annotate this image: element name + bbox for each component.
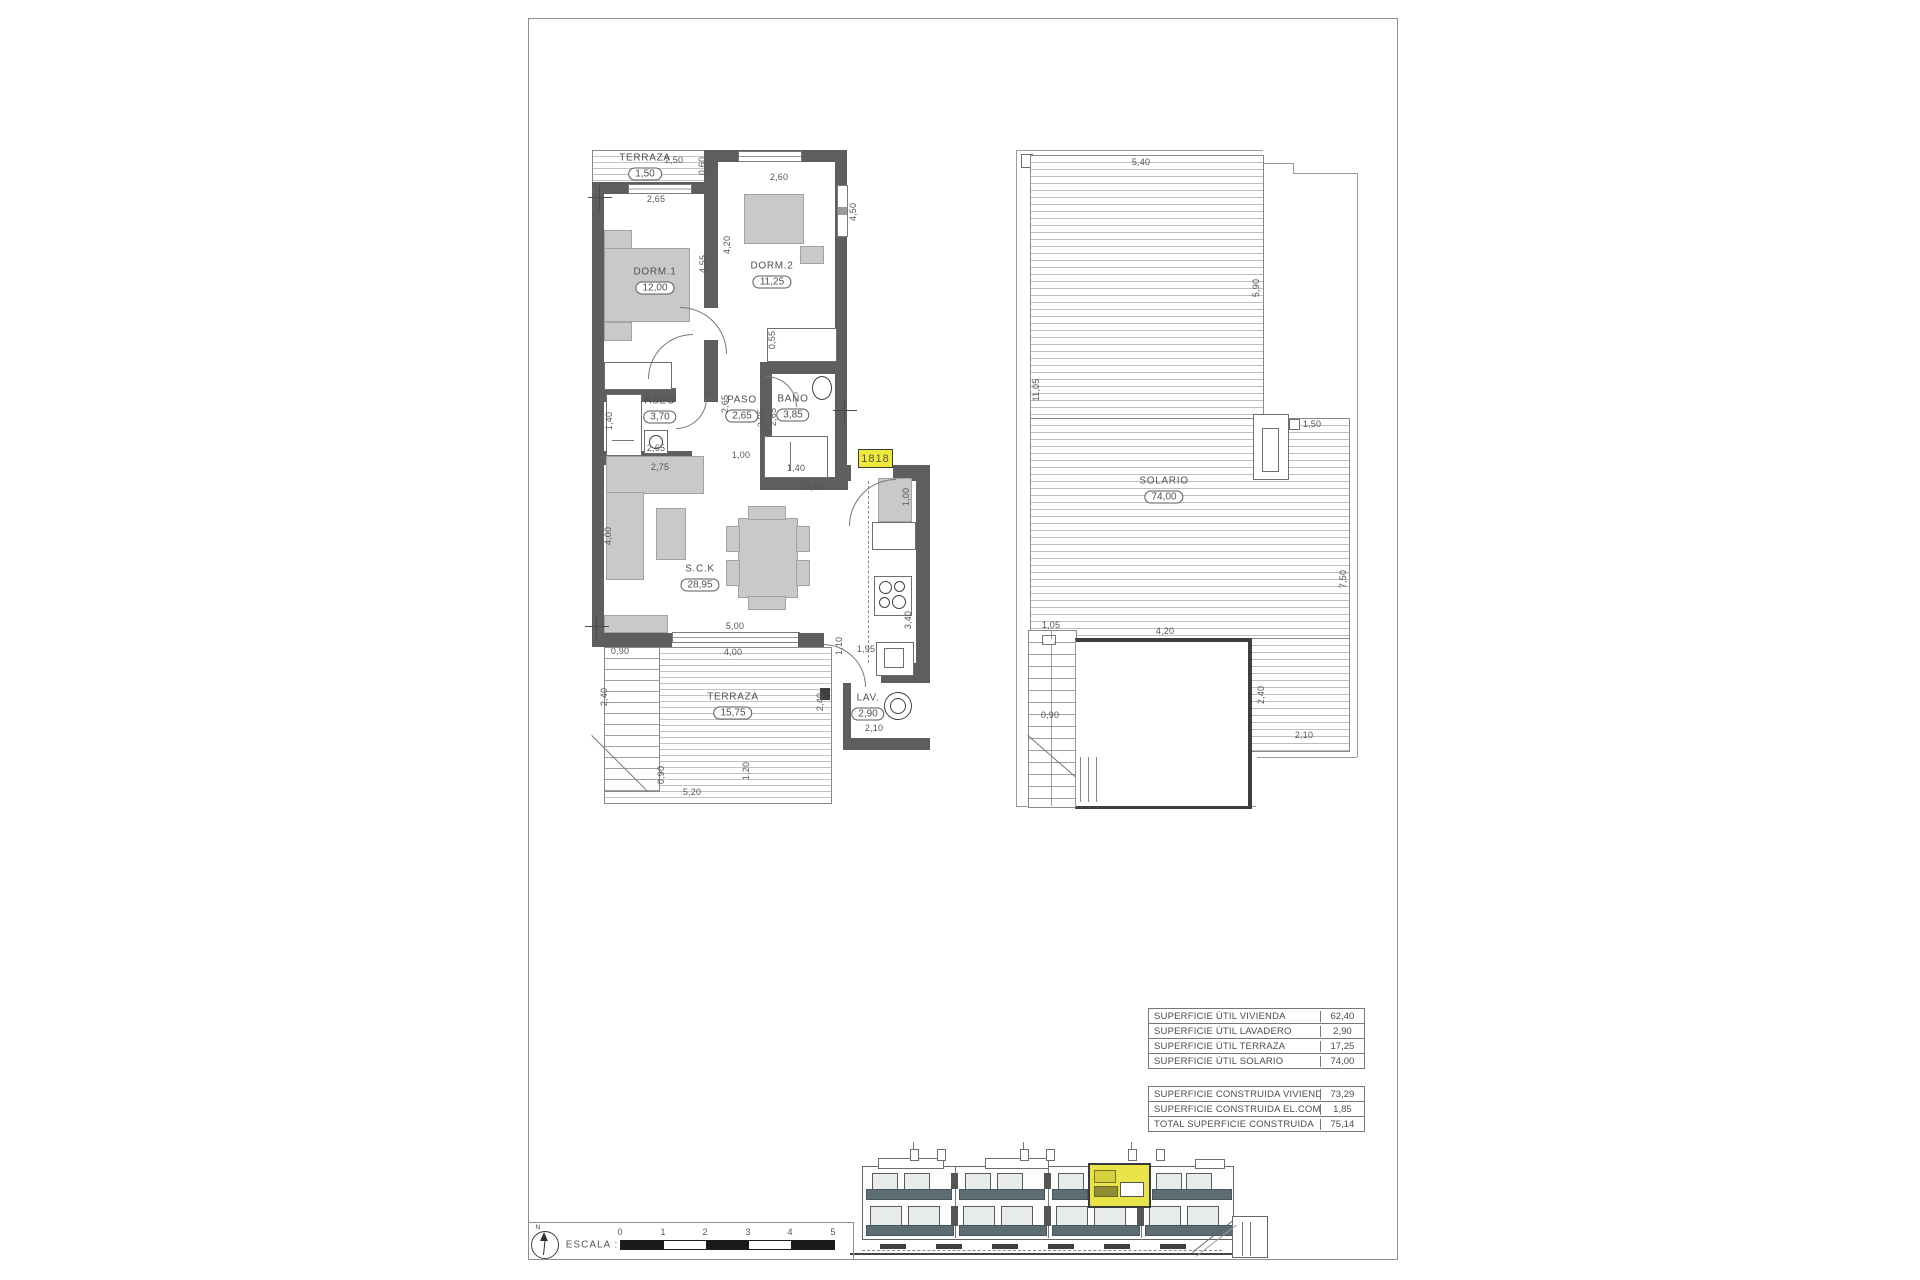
row-value: 74,00 xyxy=(1320,1056,1364,1067)
unit-railing xyxy=(1094,1186,1118,1197)
wall-entry-left xyxy=(835,465,851,481)
unit-window xyxy=(1094,1170,1116,1183)
wall-left xyxy=(592,182,604,647)
scale-tick: 2 xyxy=(702,1227,707,1237)
room-area: 28,95 xyxy=(680,579,719,592)
chimney-inner xyxy=(1262,428,1279,472)
room-area: 15,75 xyxy=(713,707,752,720)
balcony-railing xyxy=(959,1189,1045,1200)
base-opening xyxy=(1160,1244,1186,1249)
scale-bar xyxy=(620,1240,835,1250)
survey-cross xyxy=(588,186,612,210)
room-label-aseo: ASEO 3,70 xyxy=(643,396,676,425)
room-name: DORM.2 xyxy=(750,261,793,272)
balcony-railing xyxy=(866,1225,954,1236)
window-sck xyxy=(672,632,800,643)
room-name: TERRAZA xyxy=(707,692,759,703)
row-value: 1,85 xyxy=(1320,1104,1364,1115)
roof-parapet xyxy=(1195,1159,1225,1169)
desk-dorm2 xyxy=(800,246,824,264)
chair xyxy=(748,596,786,610)
solarium-deck-mid xyxy=(1030,418,1350,640)
outline xyxy=(1263,163,1293,164)
wall-sck-corner xyxy=(798,633,824,647)
dim-label: 0,60 xyxy=(697,157,707,175)
chimney xyxy=(1156,1149,1165,1161)
row-value: 75,14 xyxy=(1320,1119,1364,1130)
dim-label: 4,20 xyxy=(722,236,732,254)
roof-parapet xyxy=(985,1158,1049,1169)
annex-line xyxy=(1242,1222,1243,1256)
room-area: 3,85 xyxy=(776,409,809,422)
dim-label: 0,90 xyxy=(1041,710,1059,720)
coffee-table xyxy=(656,508,686,560)
wall-lav-bottom xyxy=(843,738,930,750)
chimney xyxy=(1046,1149,1055,1161)
dim-label: 1,10 xyxy=(834,637,844,655)
window-dorm2 xyxy=(738,151,802,162)
bed-dorm2 xyxy=(744,194,804,244)
north-arrowhead xyxy=(540,1232,548,1241)
stair-slit-window xyxy=(1044,1206,1051,1226)
outline xyxy=(1016,150,1017,807)
room-area: 1,50 xyxy=(628,168,661,181)
window-dorm1 xyxy=(628,184,692,194)
chair xyxy=(726,560,740,586)
row-value: 62,40 xyxy=(1320,1011,1364,1022)
window xyxy=(904,1173,930,1190)
stair-slit-window xyxy=(951,1206,958,1226)
room-label-terraza-top: TERRAZA 1,50 xyxy=(619,153,671,182)
nightstand xyxy=(604,230,632,249)
outline xyxy=(1357,173,1358,757)
room-area: 11,25 xyxy=(753,276,791,289)
dim-label: 2,60 xyxy=(770,172,788,182)
dim-label: 1,95 xyxy=(857,644,875,654)
bathtub-line xyxy=(612,440,634,441)
balcony-railing xyxy=(1052,1225,1140,1236)
room-name: PASO xyxy=(725,395,758,406)
north-letter: N xyxy=(535,1225,540,1232)
room-label-lav: LAV. 2,90 xyxy=(851,693,884,722)
room-area: 12,00 xyxy=(635,282,674,295)
base-opening xyxy=(1104,1244,1130,1249)
dim-label: 3,50 xyxy=(805,482,823,492)
table-superficie-util: SUPERFICIE ÚTIL VIVIENDA 62,40 SUPERFICI… xyxy=(1148,1008,1365,1069)
outline xyxy=(1257,757,1357,758)
window-dorm2-side xyxy=(837,185,848,237)
window xyxy=(1149,1206,1181,1226)
dim-label: 11,05 xyxy=(1031,379,1041,402)
base-opening xyxy=(936,1244,962,1249)
stair-arrow xyxy=(1043,636,1055,644)
unit-window xyxy=(1120,1182,1144,1197)
window xyxy=(908,1206,940,1226)
dim-label: 2,10 xyxy=(865,723,883,733)
void-step-line xyxy=(1088,757,1089,802)
row-label: SUPERFICIE ÚTIL LAVADERO xyxy=(1149,1026,1320,1037)
table-row: SUPERFICIE CONSTRUIDA EL.COMUNES 1,85 xyxy=(1149,1102,1364,1117)
dim-label: 2,40 xyxy=(1256,686,1266,704)
wall-kitchen-right xyxy=(916,465,930,683)
kitchen-cabinet xyxy=(872,522,916,550)
scale-tick: 3 xyxy=(745,1227,750,1237)
dim-label: 4,00 xyxy=(724,647,742,657)
solarium-void xyxy=(1075,638,1252,809)
annex-line xyxy=(1250,1222,1251,1256)
chair xyxy=(796,560,810,586)
chimney xyxy=(910,1149,919,1161)
scale-tick: 0 xyxy=(617,1227,622,1237)
room-name: BAÑO xyxy=(776,394,809,405)
sink-basin xyxy=(884,648,904,668)
scale-tick: 4 xyxy=(787,1227,792,1237)
window xyxy=(963,1206,995,1226)
survey-cross xyxy=(585,615,609,639)
window xyxy=(1056,1206,1088,1226)
room-name: DORM.1 xyxy=(633,267,676,278)
wardrobe-dorm2 xyxy=(767,328,837,362)
table-row: SUPERFICIE ÚTIL SOLARIO 74,00 xyxy=(1149,1054,1364,1068)
floorplan-stairs xyxy=(604,647,660,792)
row-label: SUPERFICIE ÚTIL TERRAZA xyxy=(1149,1041,1320,1052)
void-step-line xyxy=(1096,757,1097,802)
room-name: ASEO xyxy=(643,396,676,407)
balcony-railing xyxy=(1052,1189,1088,1200)
window xyxy=(1001,1206,1033,1226)
balcony-railing xyxy=(959,1225,1047,1236)
window xyxy=(1058,1173,1084,1190)
dim-label: 7,50 xyxy=(1338,570,1348,588)
outline xyxy=(1293,173,1357,174)
table-row: SUPERFICIE ÚTIL LAVADERO 2,90 xyxy=(1149,1024,1364,1039)
washer-drum xyxy=(890,698,906,714)
dim-label: 0,90 xyxy=(611,646,629,656)
stair-slit-window xyxy=(1137,1206,1144,1226)
room-label-solario: SOLARIO 74,00 xyxy=(1139,476,1188,505)
room-name: SOLARIO xyxy=(1139,476,1188,487)
dim-label: 2,10 xyxy=(1295,730,1313,740)
room-label-bano: BAÑO 3,85 xyxy=(776,394,809,423)
room-label-dorm1: DORM.1 12,00 xyxy=(633,267,676,296)
window xyxy=(965,1173,991,1190)
burner xyxy=(894,581,905,592)
burner xyxy=(879,581,892,594)
row-value: 2,90 xyxy=(1320,1026,1364,1037)
stair-slit-window xyxy=(951,1173,958,1189)
dim-label: 1,20 xyxy=(741,762,751,780)
nightstand xyxy=(604,322,632,341)
room-label-terraza-main: TERRAZA 15,75 xyxy=(707,692,759,721)
dim-label: 1,40 xyxy=(787,463,805,473)
room-label-dorm2: DORM.2 11,25 xyxy=(750,261,793,290)
dim-label: 5,20 xyxy=(683,787,701,797)
chair xyxy=(726,526,740,552)
dim-label: 4,55 xyxy=(698,255,708,273)
burner xyxy=(879,597,890,608)
antenna xyxy=(1131,1142,1132,1149)
dim-label: 2,75 xyxy=(651,462,669,472)
dim-label: 5,40 xyxy=(1132,157,1150,167)
chair xyxy=(748,506,786,520)
dim-label: 0,90 xyxy=(656,766,666,784)
solarium-deck-upper xyxy=(1030,155,1264,420)
base-opening xyxy=(1048,1244,1074,1249)
room-name: TERRAZA xyxy=(619,153,671,164)
row-label: SUPERFICIE CONSTRUIDA VIVIENDA xyxy=(1149,1089,1320,1100)
dim-label: 4,50 xyxy=(848,203,858,221)
window xyxy=(997,1173,1023,1190)
dim-label: 1,05 xyxy=(1042,620,1060,630)
dim-label: 1,50 xyxy=(1303,419,1321,429)
window xyxy=(872,1173,898,1190)
chimney-marker xyxy=(1289,419,1300,430)
dim-label: 3,40 xyxy=(903,611,913,629)
base-opening xyxy=(880,1244,906,1249)
wall-lav-left xyxy=(843,683,851,740)
room-name: S.C.K xyxy=(680,564,719,575)
wall-bano-top xyxy=(760,362,847,374)
room-name: LAV. xyxy=(851,693,884,704)
table-row: SUPERFICIE CONSTRUIDA VIVIENDA 73,29 xyxy=(1149,1087,1364,1102)
dining-table xyxy=(738,518,798,598)
tv-bench xyxy=(604,615,668,633)
burner xyxy=(892,595,906,609)
scale-tick: 5 xyxy=(830,1227,835,1237)
window xyxy=(870,1206,902,1226)
dim-label: 2,40 xyxy=(815,693,825,711)
dim-label: 1,40 xyxy=(604,412,614,430)
balcony-railing xyxy=(866,1189,952,1200)
dim-label: 2,65 xyxy=(647,443,665,453)
scale-label: ESCALA : xyxy=(566,1240,618,1251)
ground-line xyxy=(850,1253,1268,1255)
antenna xyxy=(913,1142,914,1149)
ground-dashed-line xyxy=(862,1250,1222,1252)
row-label: TOTAL SUPERFICIE CONSTRUIDA xyxy=(1149,1119,1320,1130)
row-label: SUPERFICIE CONSTRUIDA EL.COMUNES xyxy=(1149,1104,1320,1115)
dim-label: 0,55 xyxy=(767,331,777,349)
dim-label: 5,00 xyxy=(726,621,744,631)
window xyxy=(1186,1173,1212,1190)
window xyxy=(1156,1173,1182,1190)
room-label-sck: S.C.K 28,95 xyxy=(680,564,719,593)
dim-label: 4,00 xyxy=(603,527,613,545)
stair-slit-window xyxy=(1044,1173,1051,1189)
balcony-railing xyxy=(1152,1189,1232,1200)
scale-tick: 1 xyxy=(660,1227,665,1237)
room-area: 2,90 xyxy=(851,708,884,721)
table-row: SUPERFICIE ÚTIL TERRAZA 17,25 xyxy=(1149,1039,1364,1054)
dim-label: 5,90 xyxy=(1251,279,1261,297)
survey-cross xyxy=(833,399,857,423)
table-row: SUPERFICIE ÚTIL VIVIENDA 62,40 xyxy=(1149,1009,1364,1024)
dim-label: 2,40 xyxy=(599,688,609,706)
row-value: 17,25 xyxy=(1320,1041,1364,1052)
table-row: TOTAL SUPERFICIE CONSTRUIDA 75,14 xyxy=(1149,1117,1364,1131)
outline xyxy=(1016,150,1263,151)
dim-label: 1,00 xyxy=(901,488,911,506)
drawing-canvas: 1818 TERRAZA 1,50 DORM.1 12,00 DORM.2 11… xyxy=(0,0,1920,1280)
room-area: 2,65 xyxy=(725,410,758,423)
room-label-paso: PASO 2,65 xyxy=(725,395,758,424)
chimney xyxy=(1020,1149,1029,1161)
antenna xyxy=(1023,1142,1024,1149)
void-step-line xyxy=(1080,757,1081,802)
row-label: SUPERFICIE ÚTIL SOLARIO xyxy=(1149,1056,1320,1067)
row-value: 73,29 xyxy=(1320,1089,1364,1100)
chimney xyxy=(1128,1149,1137,1161)
toilet xyxy=(812,376,832,400)
dim-label: 2,65 xyxy=(647,194,665,204)
chimney xyxy=(937,1149,946,1161)
unit-number-badge: 1818 xyxy=(858,449,893,468)
window xyxy=(1094,1206,1126,1226)
row-label: SUPERFICIE ÚTIL VIVIENDA xyxy=(1149,1011,1320,1022)
chair xyxy=(796,526,810,552)
room-area: 74,00 xyxy=(1144,491,1183,504)
dim-label: 1,00 xyxy=(732,450,750,460)
window xyxy=(1187,1206,1219,1226)
room-area: 3,70 xyxy=(643,411,676,424)
base-opening xyxy=(992,1244,1018,1249)
table-superficie-construida: SUPERFICIE CONSTRUIDA VIVIENDA 73,29 SUP… xyxy=(1148,1086,1365,1132)
dim-label: 4,20 xyxy=(1156,626,1174,636)
